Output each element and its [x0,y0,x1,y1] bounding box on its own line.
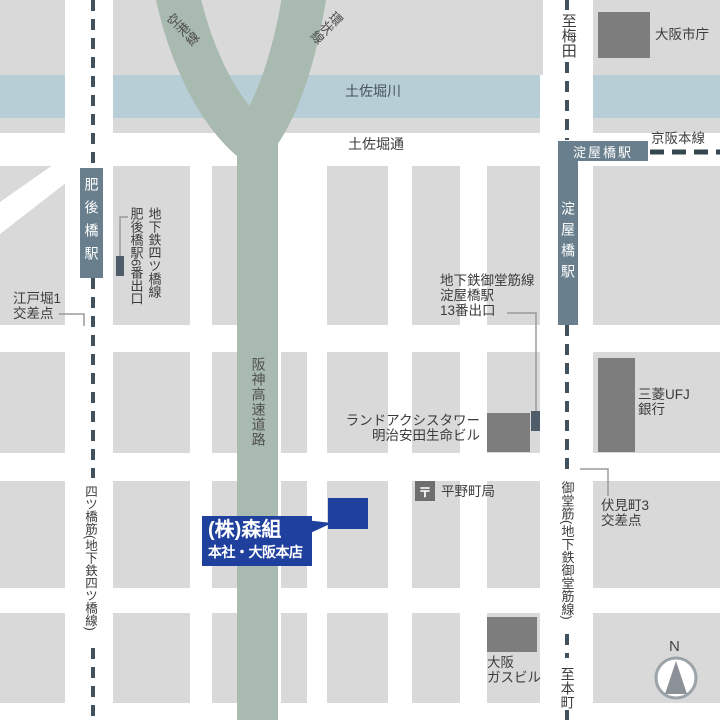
osaka-city-hall-building [598,12,650,58]
gas-line2: ガスビル [487,670,541,685]
higobashi-exit6-marker [116,256,124,276]
landaxis-line2: 明治安田生命ビル [345,428,480,443]
higobashi-exit-label: 肥後橋駅6番出口 [128,207,143,305]
river-label: 土佐堀川 [345,84,401,100]
yodoyabashi-exit-line3: 13番出口 [440,304,535,319]
landaxis-tower-building [487,413,530,452]
destination-name: (株)森組 [208,519,306,542]
mufg-line1: 三菱UFJ [638,387,690,402]
edobori-intersection-label: 江戸堀1 交差点 [13,291,61,321]
destination-building-marker [328,498,368,529]
osaka-gas-building [487,617,537,652]
post-mark: 〒 [418,482,431,501]
edobori-line1: 江戸堀1 [13,291,61,306]
landaxis-line1: ランドアクシスタワー [345,413,480,428]
post-office-label: 平野町局 [441,484,495,499]
yodoyabashi-exit-line1: 地下鉄御堂筋線 [440,274,535,289]
osaka-gas-label: 大阪 ガスビル [487,655,541,685]
destination-sub: 本社・大阪本店 [208,542,306,562]
access-map: 土佐堀川 土佐堀通 空港線 環状線 阪神高速道路 四ツ橋筋(地下鉄四ツ橋線) 御… [0,0,720,720]
yodoyabashi-subway-label: 淀屋橋駅 [558,201,578,285]
compass-icon [656,658,696,698]
yodoyabashi-exit-label: 地下鉄御堂筋線 淀屋橋駅 13番出口 [440,274,535,319]
fushimicho-line2: 交差点 [601,513,649,528]
fushimicho-line1: 伏見町3 [601,498,649,513]
yotsubashi-suji-label: 四ツ橋筋(地下鉄四ツ橋線) [83,485,97,631]
yodoyabashi-station-subway: 淀屋橋駅 [558,161,578,325]
fushimicho-intersection-label: 伏見町3 交差点 [601,498,649,528]
higobashi-station-label: 肥後橋駅 [82,177,102,269]
midosuji-label: 御堂筋(地下鉄御堂筋線) [559,481,574,620]
keihan-line-label: 京阪本線 [651,131,705,146]
destination-callout: (株)森組 本社・大阪本店 [202,516,312,566]
yodoyabashi-keihan-label: 淀屋橋駅 [573,142,633,161]
yotsubashi-bridge [65,75,113,133]
mufg-bank-building [598,358,635,452]
to-hommachi-label: 至本町 [559,667,575,709]
hanshin-expressway-label: 阪神高速道路 [250,357,266,447]
osaka-city-hall-label: 大阪市庁 [655,27,709,42]
mufg-bank-label: 三菱UFJ 銀行 [638,387,690,417]
higobashi-exit-line-label: 地下鉄四ツ橋線 [146,207,161,298]
yodoyabashi-exit13-marker [531,411,540,431]
post-office-icon: 〒 [415,481,435,501]
compass-north-label: N [669,639,680,656]
yodoyabashi-station-keihan: 淀屋橋駅 [558,141,648,161]
gas-line1: 大阪 [487,655,541,670]
to-umeda-label: 至梅田 [559,13,576,58]
mufg-line2: 銀行 [638,402,690,417]
landaxis-tower-label: ランドアクシスタワー 明治安田生命ビル [345,413,480,443]
edobori-line2: 交差点 [13,306,61,321]
tosabori-dori-label: 土佐堀通 [348,137,404,153]
higobashi-station: 肥後橋駅 [80,168,103,278]
yodoyabashi-exit-line2: 淀屋橋駅 [440,289,535,304]
